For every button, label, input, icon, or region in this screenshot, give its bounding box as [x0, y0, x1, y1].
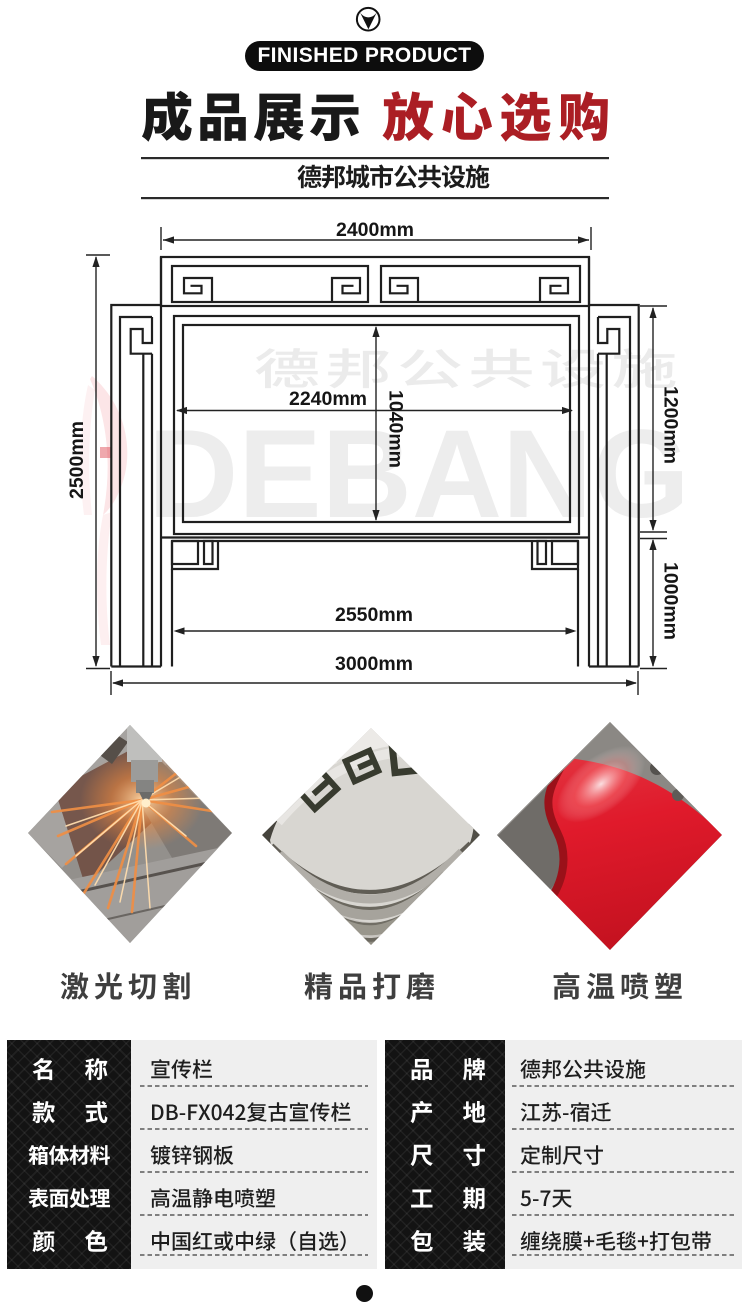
- svg-text:1200mm: 1200mm: [660, 386, 682, 464]
- svg-text:1040mm: 1040mm: [385, 390, 407, 468]
- svg-text:1000mm: 1000mm: [660, 562, 682, 640]
- svg-text:3000mm: 3000mm: [335, 653, 413, 675]
- svg-text:DEBANG: DEBANG: [148, 405, 690, 544]
- svg-text:2240mm: 2240mm: [289, 388, 367, 410]
- svg-text:2550mm: 2550mm: [335, 604, 413, 626]
- svg-text:2400mm: 2400mm: [336, 219, 414, 241]
- svg-text:2500mm: 2500mm: [66, 421, 88, 499]
